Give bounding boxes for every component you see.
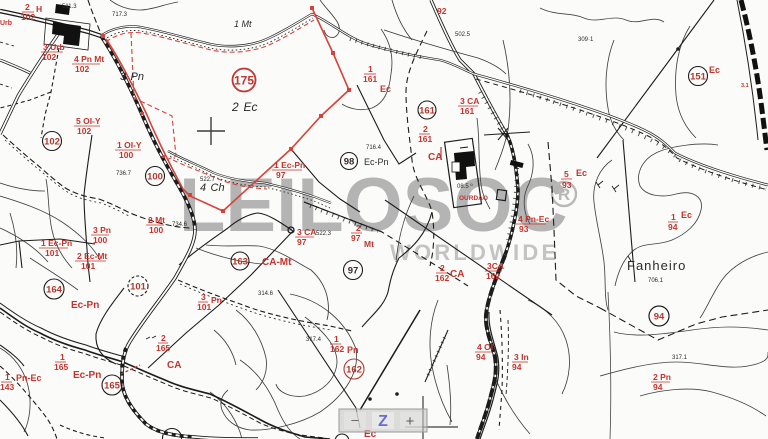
- svg-text:1: 1: [5, 372, 10, 382]
- svg-text:2 Pn: 2 Pn: [653, 372, 671, 382]
- svg-text:101: 101: [197, 302, 211, 312]
- svg-text:Ec: Ec: [380, 84, 391, 94]
- svg-text:511.3: 511.3: [62, 4, 77, 10]
- svg-text:97: 97: [351, 233, 361, 243]
- svg-text:Mt: Mt: [364, 239, 374, 249]
- svg-text:734.6: 734.6: [172, 222, 188, 228]
- svg-text:317.4: 317.4: [306, 337, 322, 343]
- svg-text:522.7: 522.7: [200, 177, 216, 183]
- svg-text:143: 143: [0, 382, 14, 392]
- svg-text:Ec: Ec: [709, 65, 720, 75]
- svg-text:OURDAO: OURDAO: [459, 195, 488, 202]
- svg-text:94: 94: [476, 352, 486, 362]
- svg-text:165: 165: [54, 362, 68, 372]
- svg-text:+: +: [406, 413, 415, 430]
- svg-text:165: 165: [104, 381, 121, 392]
- svg-text:4 Pn Mt: 4 Pn Mt: [74, 54, 104, 64]
- svg-text:3 In: 3 In: [514, 352, 529, 362]
- svg-text:H: H: [36, 4, 42, 14]
- svg-text:Pn-Ec: Pn-Ec: [16, 373, 42, 383]
- svg-text:3 Pn: 3 Pn: [120, 71, 144, 83]
- svg-text:102: 102: [77, 126, 91, 136]
- svg-text:Z: Z: [378, 413, 388, 430]
- svg-text:161: 161: [418, 134, 432, 144]
- svg-text:161: 161: [460, 106, 474, 116]
- svg-text:Ec: Ec: [576, 168, 587, 178]
- svg-text:736.7: 736.7: [116, 171, 132, 177]
- svg-text:97: 97: [276, 170, 286, 180]
- svg-text:Pn: Pn: [211, 295, 222, 305]
- svg-text:93: 93: [562, 180, 572, 190]
- svg-text:3 CA: 3 CA: [297, 227, 316, 237]
- svg-text:1: 1: [334, 334, 339, 344]
- svg-text:2 Ec-Mt: 2 Ec-Mt: [77, 251, 107, 261]
- svg-text:317.1: 317.1: [672, 355, 688, 361]
- svg-text:1: 1: [671, 212, 676, 222]
- svg-text:102: 102: [42, 52, 56, 62]
- svg-text:101: 101: [130, 282, 147, 293]
- svg-text:CA: CA: [450, 269, 464, 280]
- svg-text:1: 1: [368, 64, 373, 74]
- svg-text:3: 3: [201, 292, 206, 302]
- svg-text:1 Ec-Pn: 1 Ec-Pn: [274, 160, 305, 170]
- svg-text:5: 5: [564, 169, 569, 179]
- svg-text:LEILOSOC: LEILOSOC: [179, 163, 567, 248]
- svg-text:92: 92: [437, 6, 447, 16]
- svg-text:2: 2: [440, 263, 445, 273]
- svg-text:162: 162: [486, 271, 500, 281]
- svg-text:706.1: 706.1: [648, 278, 664, 284]
- svg-text:1: 1: [60, 352, 65, 362]
- svg-text:162: 162: [330, 344, 344, 354]
- svg-text:100: 100: [147, 172, 163, 183]
- svg-text:1 Mt: 1 Mt: [234, 19, 252, 29]
- svg-text:93: 93: [519, 224, 529, 234]
- svg-text:717.3: 717.3: [112, 12, 128, 18]
- svg-text:101: 101: [81, 261, 95, 271]
- svg-text:151: 151: [690, 72, 707, 83]
- svg-text:Ec: Ec: [681, 210, 692, 220]
- svg-text:502.5: 502.5: [455, 32, 471, 38]
- svg-text:162: 162: [435, 273, 449, 283]
- svg-text:Pn: Pn: [347, 345, 359, 355]
- svg-text:161: 161: [419, 106, 436, 117]
- svg-text:3CA: 3CA: [487, 261, 504, 271]
- svg-text:100: 100: [93, 235, 107, 245]
- svg-text:98: 98: [344, 157, 355, 168]
- svg-text:102: 102: [21, 12, 35, 22]
- svg-text:522.3: 522.3: [316, 231, 332, 237]
- svg-text:08.5 º: 08.5 º: [457, 183, 473, 190]
- svg-text:Fanheiro: Fanheiro: [627, 258, 686, 273]
- svg-text:94: 94: [668, 222, 678, 232]
- svg-text:100: 100: [119, 150, 133, 160]
- svg-text:4 Pn-Ec: 4 Pn-Ec: [518, 214, 549, 224]
- svg-text:161: 161: [363, 74, 377, 84]
- svg-text:97: 97: [348, 266, 359, 277]
- svg-text:97: 97: [297, 237, 307, 247]
- svg-text:2: 2: [356, 223, 361, 233]
- svg-text:CA: CA: [167, 360, 181, 371]
- svg-text:2: 2: [161, 333, 166, 343]
- svg-text:Ec-Pn: Ec-Pn: [73, 370, 101, 381]
- svg-text:716.4: 716.4: [366, 145, 382, 151]
- svg-text:3 Urb: 3 Urb: [43, 42, 65, 52]
- svg-text:101: 101: [45, 248, 59, 258]
- svg-text:3 Pn: 3 Pn: [93, 225, 111, 235]
- svg-text:1 OI-Y: 1 OI-Y: [117, 140, 142, 150]
- svg-text:102: 102: [75, 64, 89, 74]
- svg-text:2 Mt: 2 Mt: [148, 215, 165, 225]
- svg-text:175: 175: [234, 74, 254, 88]
- svg-text:5 OI-Y: 5 OI-Y: [76, 116, 101, 126]
- svg-text:163: 163: [232, 257, 248, 268]
- svg-text:2 Ec: 2 Ec: [231, 100, 257, 114]
- svg-text:94: 94: [654, 312, 665, 323]
- svg-text:Ec-Pn: Ec-Pn: [364, 157, 389, 167]
- svg-text:CA-Mt: CA-Mt: [262, 257, 292, 268]
- svg-text:100: 100: [149, 225, 163, 235]
- svg-text:1 Ec-Pn: 1 Ec-Pn: [41, 238, 72, 248]
- svg-text:4 OI: 4 OI: [477, 342, 493, 352]
- svg-text:3 CA: 3 CA: [460, 96, 479, 106]
- svg-text:94: 94: [653, 382, 663, 392]
- svg-text:165: 165: [156, 343, 170, 353]
- svg-text:314.6: 314.6: [258, 291, 274, 297]
- svg-text:Urb: Urb: [0, 20, 12, 27]
- svg-text:3.1: 3.1: [741, 83, 749, 89]
- svg-text:2: 2: [25, 2, 30, 12]
- svg-text:CA: CA: [428, 152, 442, 163]
- svg-text:4 Ch: 4 Ch: [200, 182, 225, 194]
- svg-text:2: 2: [423, 124, 428, 134]
- svg-text:Ec-Pn: Ec-Pn: [71, 300, 99, 311]
- svg-text:164: 164: [46, 285, 63, 296]
- svg-text:94: 94: [512, 362, 522, 372]
- svg-text:162: 162: [346, 365, 362, 376]
- svg-text:–: –: [351, 412, 359, 427]
- svg-text:102: 102: [44, 137, 60, 148]
- svg-text:309·1: 309·1: [578, 37, 594, 43]
